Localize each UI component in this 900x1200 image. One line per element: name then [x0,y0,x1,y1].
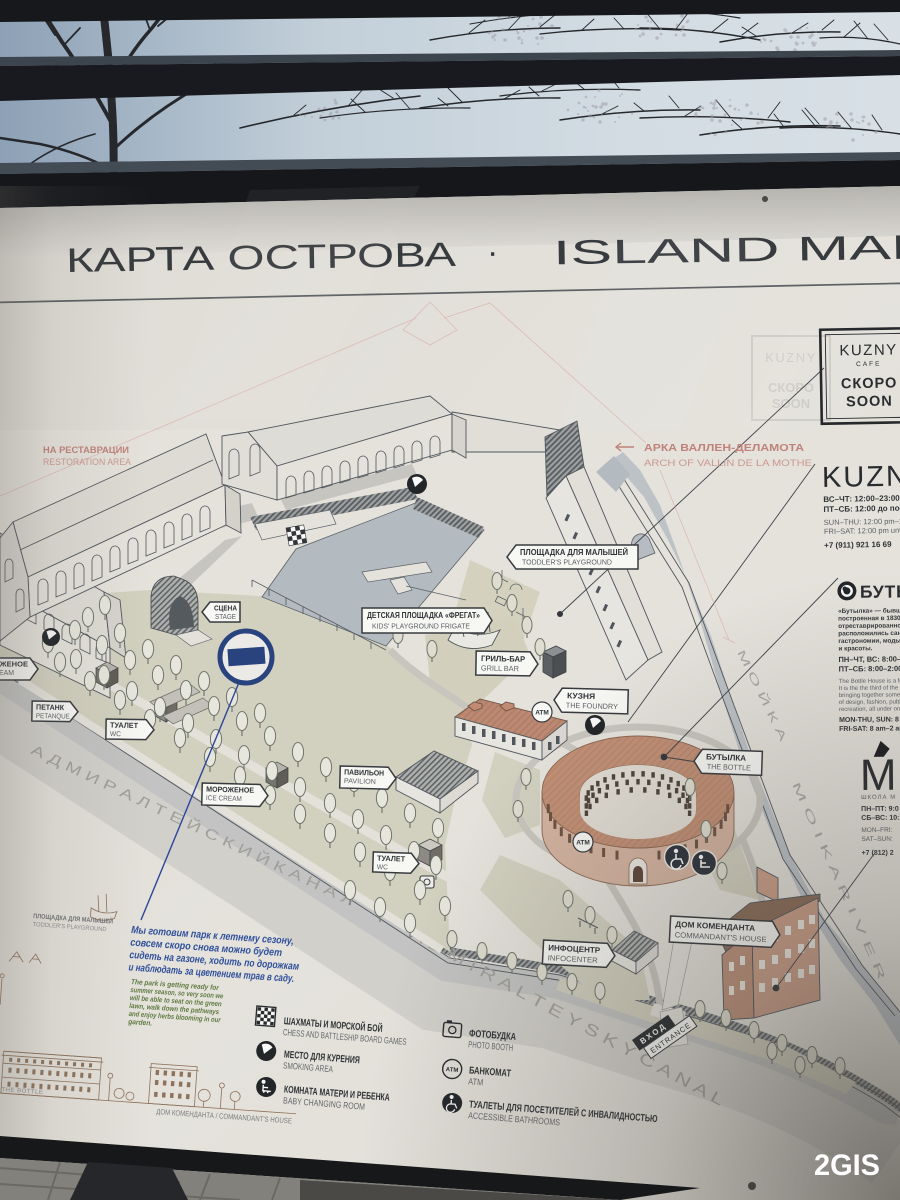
svg-text:2GIS: 2GIS [814,1149,880,1182]
